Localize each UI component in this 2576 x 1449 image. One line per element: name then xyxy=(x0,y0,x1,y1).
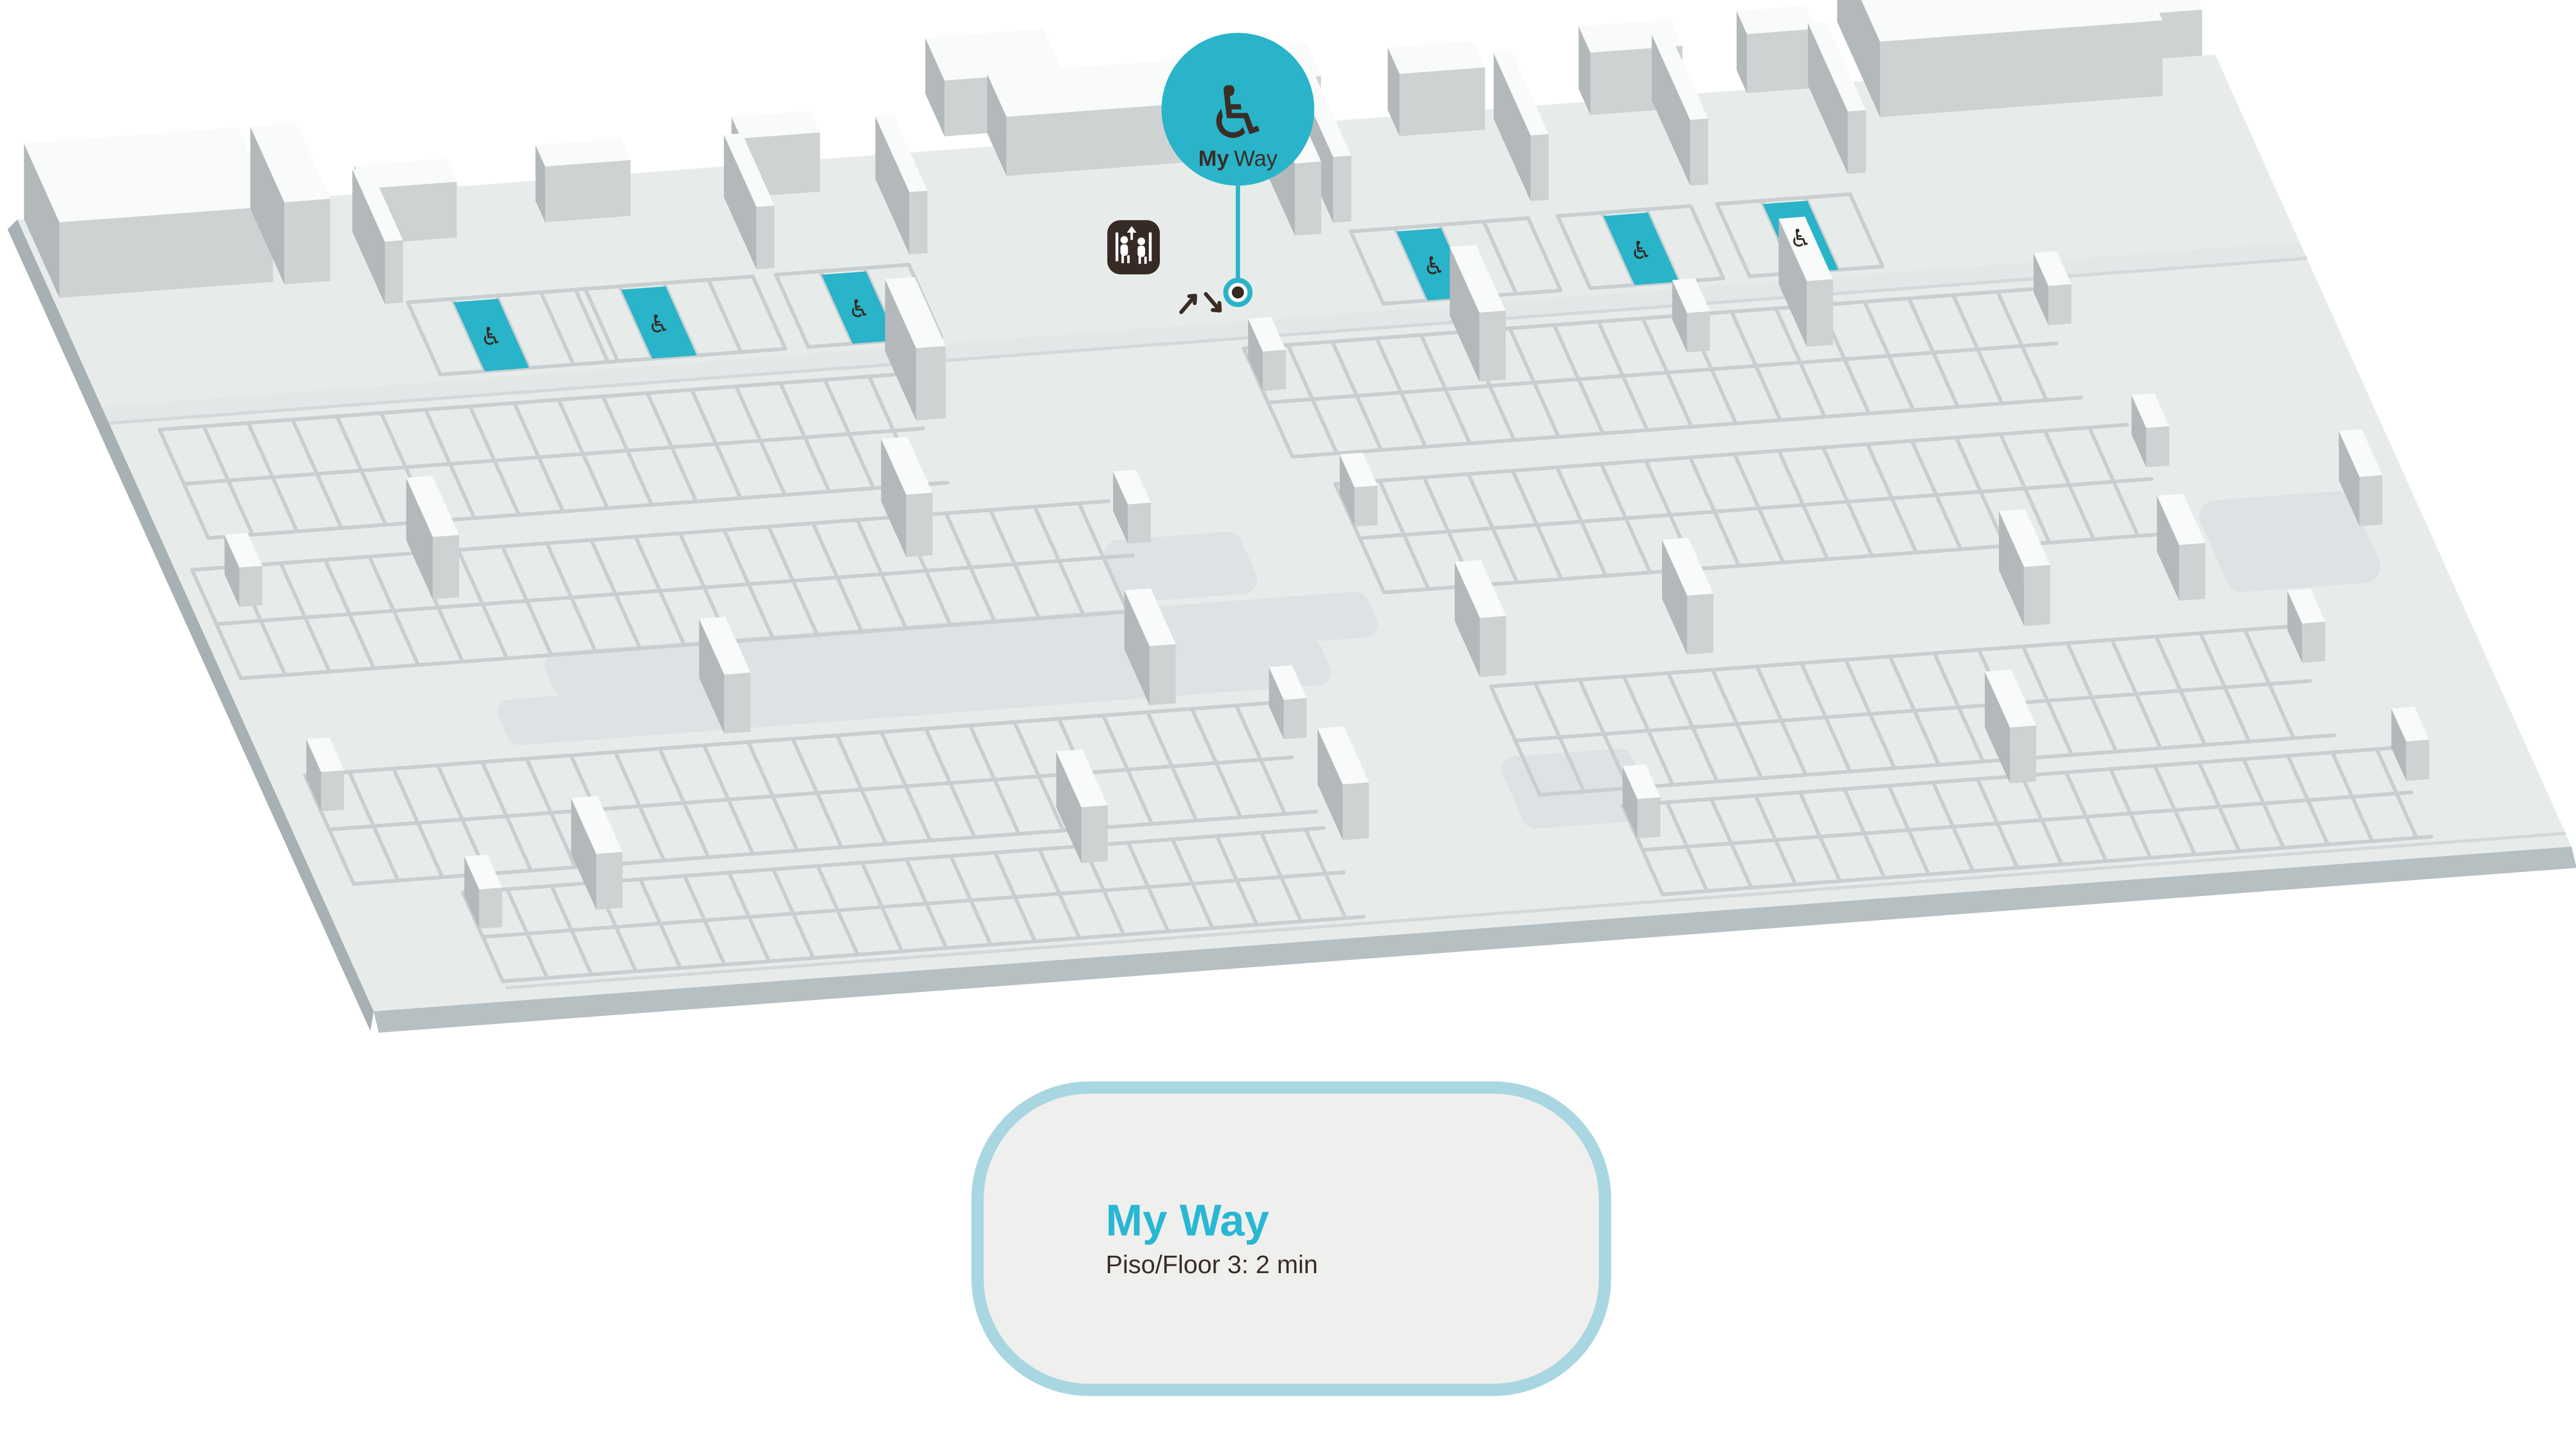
structure-block xyxy=(1388,41,1485,136)
wheelchair-icon: ♿ xyxy=(1423,252,1445,280)
person-icon xyxy=(1120,236,1128,243)
info-card-shape xyxy=(978,1088,1605,1390)
elevator-icon[interactable] xyxy=(1107,220,1160,274)
info-card-subtitle: Piso/Floor 3: 2 min xyxy=(1106,1250,1318,1279)
ramp-lane xyxy=(2216,508,2364,575)
route-info-card: My Way Piso/Floor 3: 2 min xyxy=(978,1088,1605,1390)
structure-block xyxy=(1737,6,1816,93)
person-icon xyxy=(1138,237,1145,245)
wheelchair-icon: ♿ xyxy=(1789,225,1812,252)
ramp-lane xyxy=(1119,547,1242,588)
wheelchair-icon: ♿ xyxy=(480,323,502,350)
elevator-door-bar-left xyxy=(1116,233,1118,262)
elevator-door-bar-right xyxy=(1149,233,1151,262)
structure-block xyxy=(1837,0,2163,117)
location-dot xyxy=(1226,280,1250,304)
wheelchair-icon: ♿ xyxy=(848,295,870,323)
elevator-icon-box xyxy=(1107,220,1160,274)
kiosk-screen: ♿♿♿♿♿♿ ♿ MyWay My Way Piso/Floor 3 xyxy=(0,0,2576,1449)
wheelchair-icon: ♿ xyxy=(648,310,670,338)
wheelchair-icon: ♿ xyxy=(1630,236,1653,264)
wheelchair-icon: ♿ xyxy=(1206,73,1270,154)
parking-map: ♿♿♿♿♿♿ ♿ MyWay My Way Piso/Floor 3 xyxy=(0,0,2576,1449)
info-card-title: My Way xyxy=(1106,1195,1269,1245)
structure-block xyxy=(535,139,631,223)
marker-label: MyWay xyxy=(1198,146,1278,171)
structure-block xyxy=(24,127,273,298)
my-way-marker[interactable]: ♿ MyWay xyxy=(1161,33,1314,185)
